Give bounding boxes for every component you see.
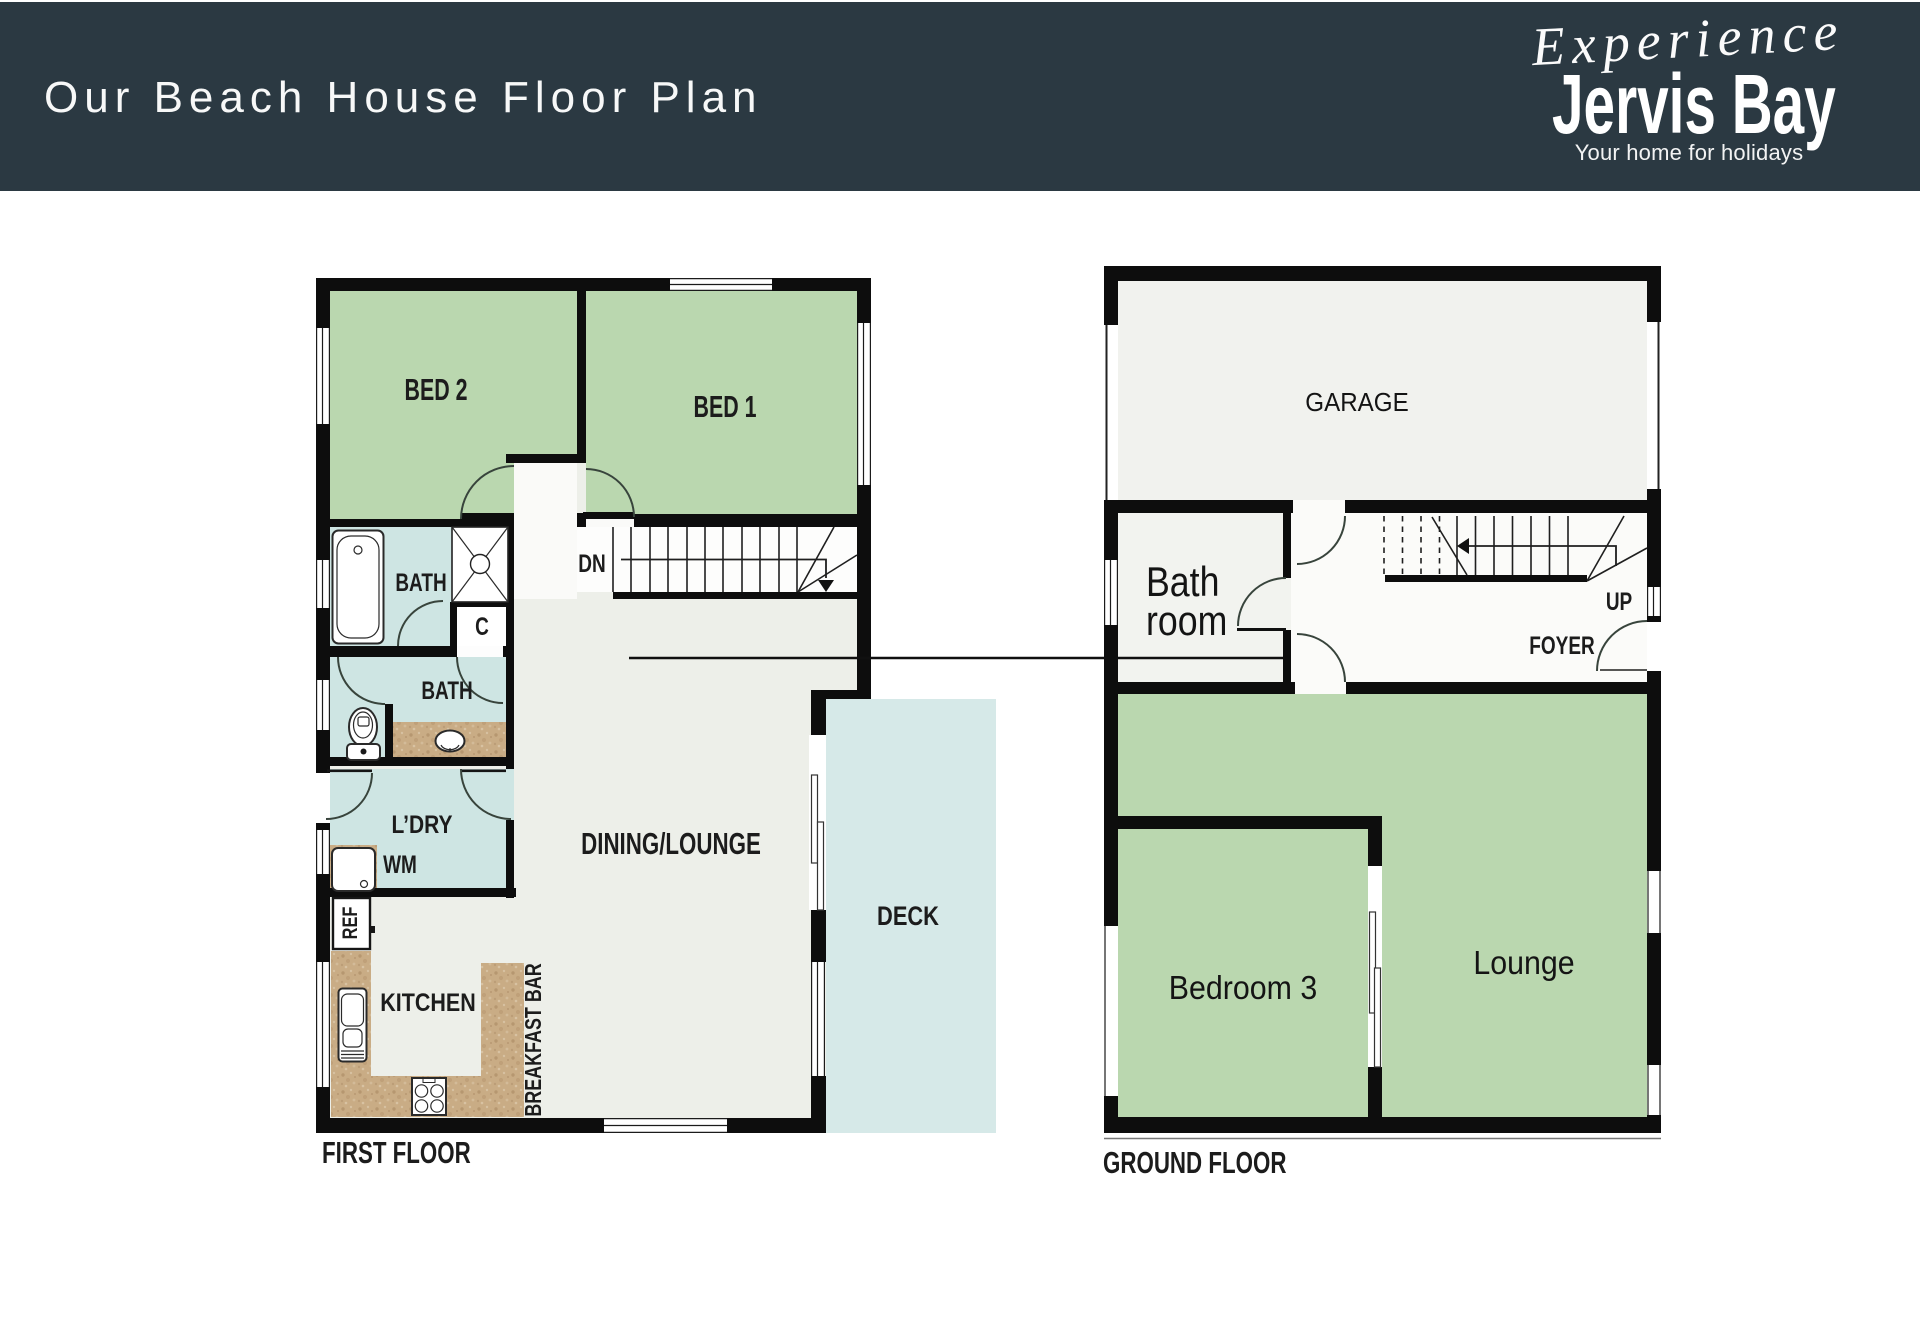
svg-text:BED 1: BED 1 bbox=[694, 389, 757, 424]
svg-text:FOYER: FOYER bbox=[1529, 631, 1594, 659]
svg-text:BATH: BATH bbox=[395, 568, 446, 596]
svg-text:C: C bbox=[475, 612, 489, 640]
svg-text:REF: REF bbox=[338, 907, 361, 940]
svg-text:BREAKFAST BAR: BREAKFAST BAR bbox=[521, 963, 547, 1116]
svg-text:DINING/LOUNGE: DINING/LOUNGE bbox=[581, 826, 761, 860]
svg-text:BATH: BATH bbox=[421, 676, 472, 704]
svg-text:room: room bbox=[1146, 598, 1227, 644]
svg-text:Lounge: Lounge bbox=[1473, 944, 1574, 981]
svg-text:DN: DN bbox=[578, 549, 605, 577]
svg-text:UP: UP bbox=[1606, 587, 1633, 615]
svg-text:FIRST FLOOR: FIRST FLOOR bbox=[322, 1135, 471, 1169]
svg-text:WM: WM bbox=[383, 850, 417, 878]
svg-text:L’DRY: L’DRY bbox=[391, 810, 453, 838]
svg-text:GARAGE: GARAGE bbox=[1305, 388, 1408, 417]
svg-text:Bedroom 3: Bedroom 3 bbox=[1169, 969, 1317, 1006]
svg-text:GROUND FLOOR: GROUND FLOOR bbox=[1103, 1145, 1286, 1179]
svg-text:DECK: DECK bbox=[877, 902, 939, 932]
svg-text:KITCHEN: KITCHEN bbox=[380, 988, 475, 1016]
svg-text:BED 2: BED 2 bbox=[405, 372, 468, 407]
